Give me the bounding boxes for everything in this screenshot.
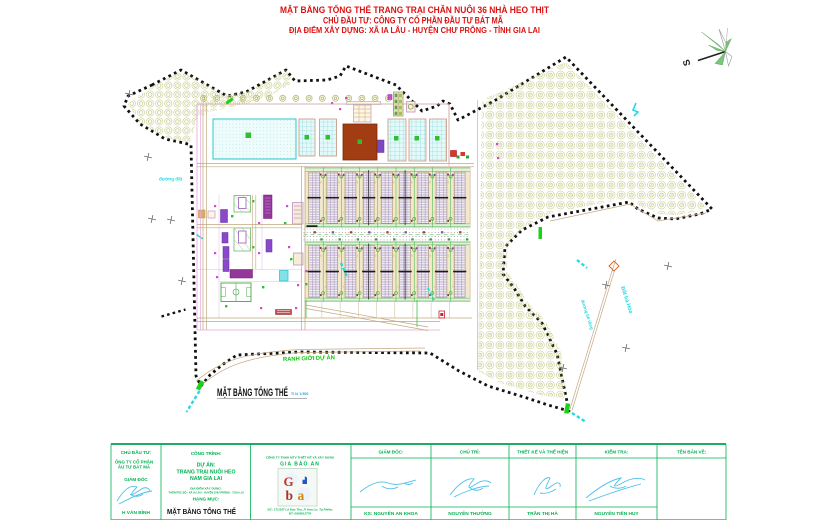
svg-text:G: G xyxy=(284,474,294,489)
svg-text:đường đất: đường đất xyxy=(159,176,183,182)
svg-text:CÔNG TRÌNH:: CÔNG TRÌNH: xyxy=(191,449,222,456)
svg-text:a: a xyxy=(298,488,305,503)
svg-text:GIA BẢO AN: GIA BẢO AN xyxy=(280,461,320,468)
svg-text:MẶT BẰNG TỔNG THỂ TRANG TRẠI C: MẶT BẰNG TỔNG THỂ TRANG TRẠI CHĂN NUÔI 3… xyxy=(280,4,549,16)
svg-text:TÊN BẢN VẼ:: TÊN BẢN VẼ: xyxy=(677,448,707,455)
svg-text:b: b xyxy=(286,488,294,503)
svg-text:GIÁM ĐỐC:: GIÁM ĐỐC: xyxy=(378,449,403,455)
svg-text:CHỦ TRÌ:: CHỦ TRÌ: xyxy=(460,448,481,455)
svg-text:DỰ ÁN:: DỰ ÁN: xyxy=(197,462,216,469)
svg-text:MẶT BẰNG TỔNG THỂ: MẶT BẰNG TỔNG THỂ xyxy=(217,386,288,399)
svg-text:TRẦN THỊ HÀ: TRẦN THỊ HÀ xyxy=(527,510,558,517)
svg-text:NGUYỄN TIẾN HUY: NGUYỄN TIẾN HUY xyxy=(594,510,639,517)
svg-text:KIỂM TRA:: KIỂM TRA: xyxy=(605,449,629,455)
svg-text:NAM GIA LAI: NAM GIA LAI xyxy=(190,476,223,482)
svg-text:THIẾT KẾ VÀ THỂ HIỆN: THIẾT KẾ VÀ THỂ HIỆN xyxy=(517,448,569,455)
svg-text:GIÁM ĐỐC: GIÁM ĐỐC xyxy=(124,476,148,482)
svg-text:MẶT BẰNG TỔNG THỂ: MẶT BẰNG TỔNG THỂ xyxy=(167,507,236,516)
svg-text:Tỉ lệ 1:500: Tỉ lệ 1:500 xyxy=(291,392,308,396)
svg-text:ĐỊA ĐIỂM XÂY DỰNG: XÃ IA LÂU -: ĐỊA ĐIỂM XÂY DỰNG: XÃ IA LÂU - HUYỆN CHƯ… xyxy=(289,24,540,35)
svg-text:ĐỊA ĐIỂM XÂY DỰNG:: ĐỊA ĐIỂM XÂY DỰNG: xyxy=(190,486,221,491)
svg-text:ẦU TƯ BÁT MÃ: ẦU TƯ BÁT MÃ xyxy=(118,465,151,470)
svg-text:KS: NGUYỄN AN KHOA: KS: NGUYỄN AN KHOA xyxy=(364,510,418,517)
svg-text:HẠNG MỤC:: HẠNG MỤC: xyxy=(193,497,220,502)
svg-text:CHỦ ĐẦU TƯ:: CHỦ ĐẦU TƯ: xyxy=(121,449,152,455)
svg-text:TRANG TRẠI NUÔI HEO: TRANG TRẠI NUÔI HEO xyxy=(176,468,235,476)
svg-text:CÔNG TY TNHH MTV THIẾT KẾ VÀ X: CÔNG TY TNHH MTV THIẾT KẾ VÀ XÂY DỰNG xyxy=(266,455,335,460)
svg-text:NGUYỄN THƯỞNG: NGUYỄN THƯỞNG xyxy=(448,510,492,517)
svg-text:ĐT: 0905812776: ĐT: 0905812776 xyxy=(289,512,312,516)
